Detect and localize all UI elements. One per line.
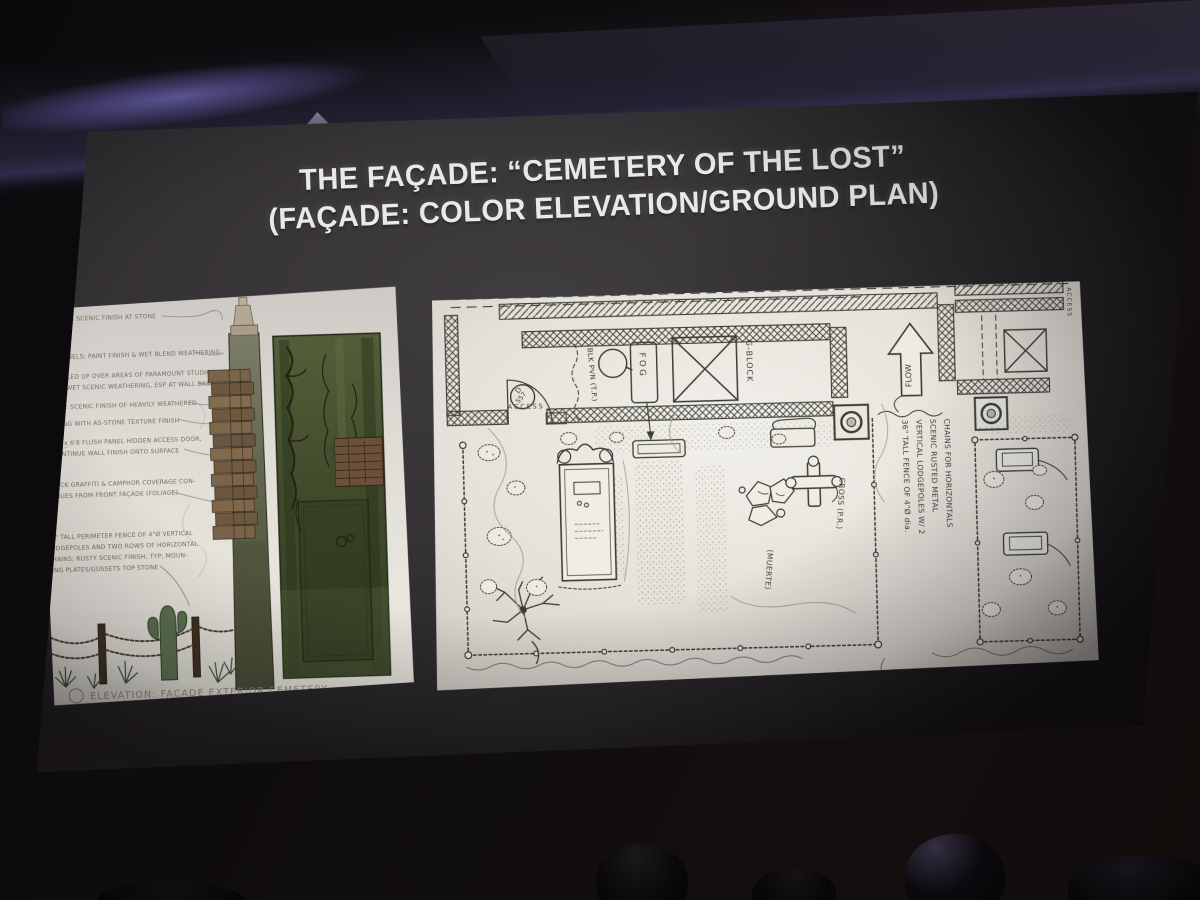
speaker-symbol (834, 405, 869, 440)
access-label-right: ACCESS (1065, 287, 1073, 317)
tower-weathering (232, 541, 273, 690)
flow-label: FLOW (904, 364, 914, 387)
projected-slide: THE FAÇADE: “CEMETERY OF THE LOST” (FAÇA… (0, 0, 1200, 900)
bench (633, 440, 685, 458)
elevation-wall (273, 333, 391, 678)
finial-base (231, 325, 258, 336)
audience-head (1068, 854, 1200, 900)
tomb-monument (555, 443, 621, 590)
audience-head (905, 834, 1005, 900)
access-label-left: ACCESS (508, 402, 545, 411)
g-block-label: G-BLOCK (744, 340, 754, 383)
plan-panel: D 557 ACCESS BLK PVN (T.P.) FOG (425, 275, 1143, 700)
audience-head (596, 844, 688, 900)
brick-patch (328, 437, 383, 487)
audience-head (752, 868, 836, 900)
elevation-panel: TEXTURE & SCENIC FINISH AT STONE FOAM PA… (34, 286, 419, 709)
conference-photo: THE FAÇADE: “CEMETERY OF THE LOST” (FAÇA… (0, 0, 1200, 900)
finial-neck (233, 305, 254, 326)
audience-head (96, 882, 246, 900)
slide-title: THE FAÇADE: “CEMETERY OF THE LOST” (FAÇA… (180, 133, 1026, 242)
hidden-door-outline (298, 500, 373, 662)
fog-label: FOG (636, 352, 647, 378)
